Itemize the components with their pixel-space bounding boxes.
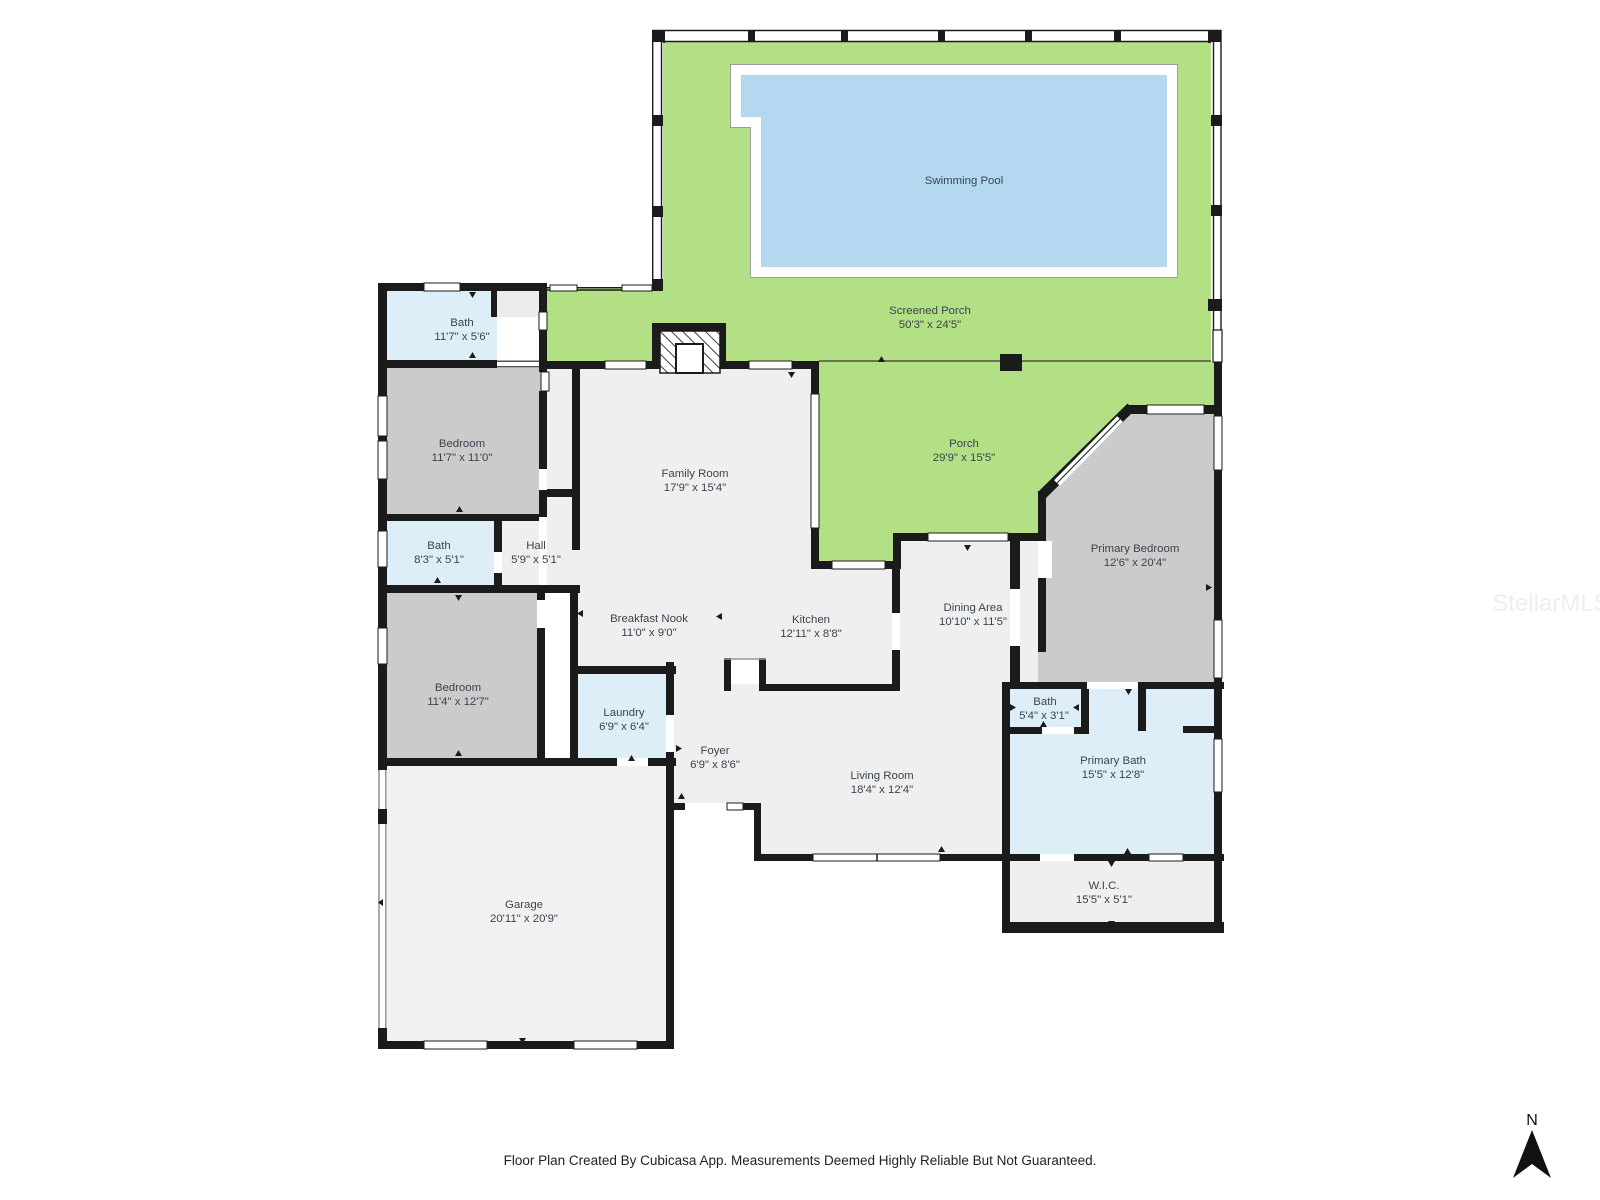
svg-text:Bath: Bath bbox=[450, 317, 473, 329]
svg-text:Swimming Pool: Swimming Pool bbox=[925, 175, 1004, 187]
svg-text:Garage: Garage bbox=[505, 899, 543, 911]
svg-text:Bedroom: Bedroom bbox=[435, 682, 481, 694]
svg-text:12'6" x 20'4": 12'6" x 20'4" bbox=[1104, 557, 1166, 569]
svg-text:Kitchen: Kitchen bbox=[792, 614, 830, 626]
svg-text:Family Room: Family Room bbox=[661, 468, 728, 480]
svg-text:5'4" x 3'1": 5'4" x 3'1" bbox=[1019, 710, 1069, 722]
svg-text:29'9" x 15'5": 29'9" x 15'5" bbox=[933, 452, 995, 464]
svg-text:Floor Plan Created By Cubicasa: Floor Plan Created By Cubicasa App. Meas… bbox=[504, 1153, 1097, 1168]
svg-text:Primary Bath: Primary Bath bbox=[1080, 755, 1146, 767]
svg-text:W.I.C.: W.I.C. bbox=[1088, 880, 1119, 892]
svg-text:11'4" x 12'7": 11'4" x 12'7" bbox=[427, 696, 489, 708]
svg-text:Hall: Hall bbox=[526, 540, 546, 552]
svg-text:6'9" x 8'6": 6'9" x 8'6" bbox=[690, 759, 740, 771]
svg-text:11'7" x 11'0": 11'7" x 11'0" bbox=[432, 452, 493, 464]
svg-text:Bath: Bath bbox=[427, 540, 450, 552]
svg-text:Screened Porch: Screened Porch bbox=[889, 305, 971, 317]
svg-text:N: N bbox=[1526, 1112, 1538, 1129]
svg-text:12'11" x 8'8": 12'11" x 8'8" bbox=[780, 628, 842, 640]
svg-text:StellarMLS: StellarMLS bbox=[1492, 590, 1600, 617]
svg-text:Bedroom: Bedroom bbox=[439, 438, 485, 450]
svg-text:Primary Bedroom: Primary Bedroom bbox=[1091, 543, 1180, 555]
svg-text:Breakfast Nook: Breakfast Nook bbox=[610, 613, 688, 625]
svg-text:Bath: Bath bbox=[1033, 696, 1056, 708]
svg-text:20'11" x 20'9": 20'11" x 20'9" bbox=[490, 913, 558, 925]
svg-text:6'9" x 6'4": 6'9" x 6'4" bbox=[599, 721, 649, 733]
svg-text:10'10" x 11'5": 10'10" x 11'5" bbox=[939, 616, 1007, 628]
svg-text:5'9" x 5'1": 5'9" x 5'1" bbox=[511, 554, 561, 566]
svg-text:11'7" x 5'6": 11'7" x 5'6" bbox=[434, 331, 489, 343]
svg-text:15'5" x 12'8": 15'5" x 12'8" bbox=[1082, 769, 1144, 781]
svg-text:17'9" x 15'4": 17'9" x 15'4" bbox=[664, 482, 726, 494]
svg-text:Living Room: Living Room bbox=[850, 770, 913, 782]
svg-text:Dining Area: Dining Area bbox=[944, 602, 1004, 614]
svg-text:50'3" x 24'5": 50'3" x 24'5" bbox=[899, 319, 961, 331]
svg-text:15'5" x 5'1": 15'5" x 5'1" bbox=[1076, 894, 1132, 906]
svg-text:11'0" x 9'0": 11'0" x 9'0" bbox=[621, 627, 676, 639]
svg-text:Laundry: Laundry bbox=[603, 707, 644, 719]
svg-text:Porch: Porch bbox=[949, 438, 979, 450]
svg-text:Foyer: Foyer bbox=[700, 745, 729, 757]
svg-text:8'3" x 5'1": 8'3" x 5'1" bbox=[414, 554, 464, 566]
svg-text:18'4" x 12'4": 18'4" x 12'4" bbox=[851, 784, 913, 796]
